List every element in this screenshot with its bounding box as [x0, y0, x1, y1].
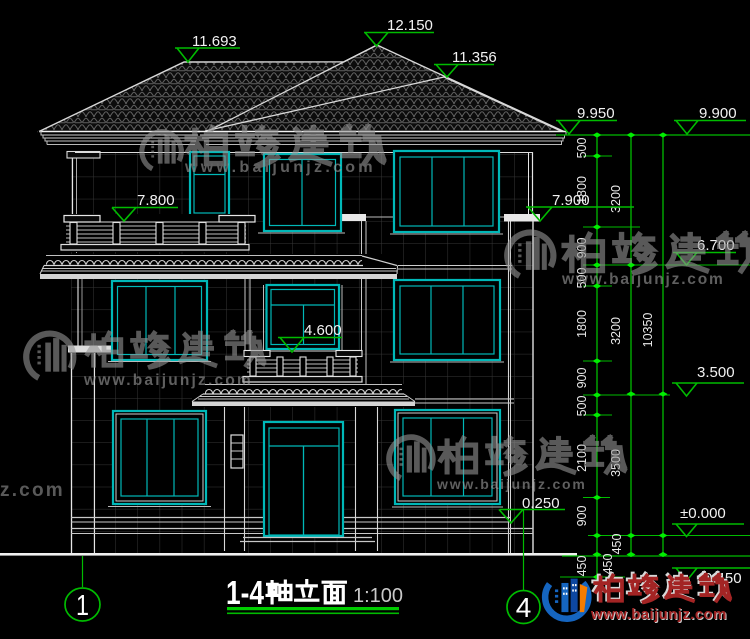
svg-text:1:100: 1:100 [353, 585, 403, 607]
svg-text:12.150: 12.150 [387, 17, 433, 34]
svg-text:500: 500 [575, 396, 589, 417]
svg-text:900: 900 [575, 506, 589, 527]
svg-text:3200: 3200 [609, 185, 623, 213]
svg-text:7.800: 7.800 [137, 192, 175, 209]
svg-text:z.com: z.com [0, 480, 65, 501]
svg-text:900: 900 [575, 368, 589, 389]
svg-text:11.693: 11.693 [192, 33, 237, 50]
svg-text:9.900: 9.900 [699, 105, 737, 122]
svg-text:3200: 3200 [609, 317, 623, 345]
svg-text:450: 450 [601, 554, 615, 575]
svg-text:1: 1 [76, 590, 89, 622]
svg-text:1800: 1800 [575, 310, 589, 338]
svg-text:7.900: 7.900 [552, 192, 590, 209]
svg-text:450: 450 [575, 556, 589, 577]
svg-text:0.250: 0.250 [522, 495, 560, 512]
svg-text:450: 450 [610, 534, 624, 555]
svg-text:9.950: 9.950 [577, 105, 615, 122]
svg-text:4: 4 [516, 592, 532, 623]
svg-text:www.baijunjz.com: www.baijunjz.com [83, 372, 253, 389]
svg-text:www.baijunjz.com: www.baijunjz.com [561, 271, 725, 288]
svg-text:3.500: 3.500 [697, 364, 735, 381]
svg-text:www.baijunjz.com: www.baijunjz.com [590, 606, 727, 623]
svg-text:500: 500 [575, 138, 589, 159]
svg-text:4.600: 4.600 [304, 322, 342, 339]
svg-text:www.baijunjz.com: www.baijunjz.com [184, 159, 376, 176]
svg-text:10350: 10350 [641, 313, 655, 348]
svg-text:±0.000: ±0.000 [680, 505, 726, 522]
svg-text:www.baijunjz.com: www.baijunjz.com [436, 476, 587, 492]
svg-text:1-4: 1-4 [226, 574, 265, 611]
svg-text:11.356: 11.356 [452, 49, 497, 66]
